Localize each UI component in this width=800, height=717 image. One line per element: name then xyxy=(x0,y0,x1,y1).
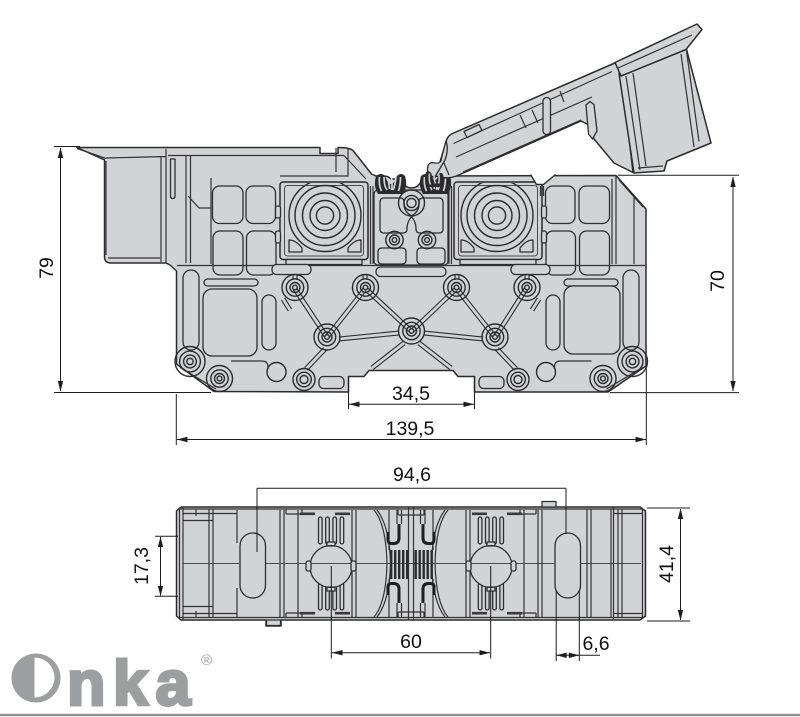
svg-text:60: 60 xyxy=(400,631,422,653)
svg-text:17,3: 17,3 xyxy=(131,547,153,585)
svg-text:70: 70 xyxy=(707,270,729,292)
svg-text:94,6: 94,6 xyxy=(393,464,431,486)
svg-text:nka: nka xyxy=(67,649,198,717)
svg-text:41,4: 41,4 xyxy=(656,545,678,583)
svg-text:79: 79 xyxy=(36,257,58,279)
svg-text:139,5: 139,5 xyxy=(386,418,435,440)
svg-text:®: ® xyxy=(201,652,212,669)
svg-text:34,5: 34,5 xyxy=(392,383,430,405)
svg-text:6,6: 6,6 xyxy=(582,633,609,655)
